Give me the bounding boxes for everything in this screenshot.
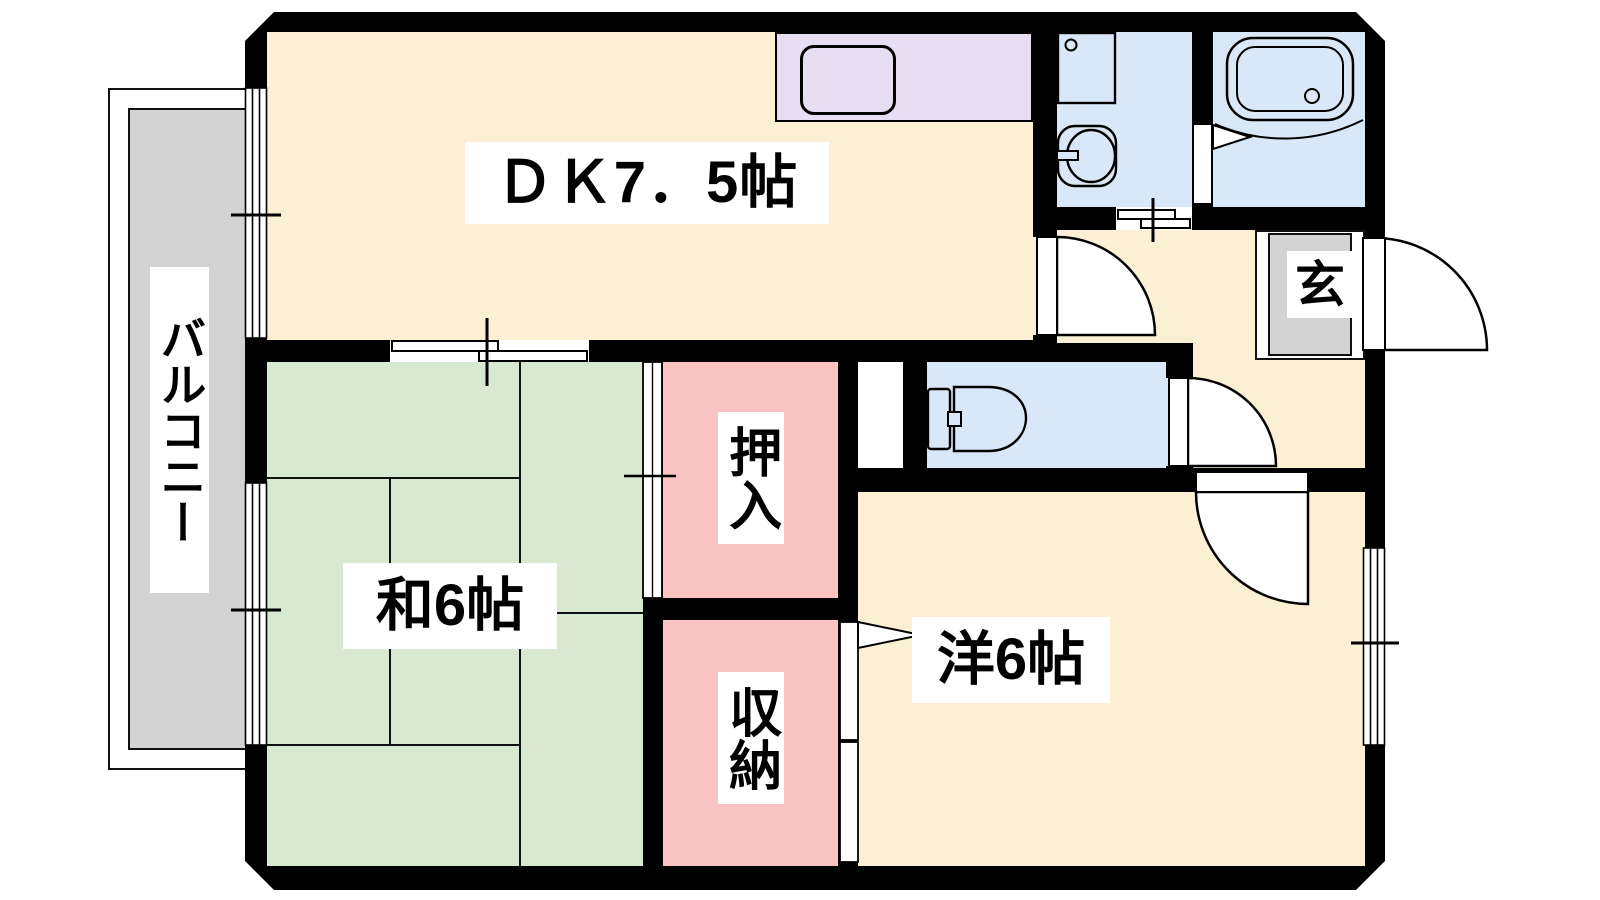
room-bathroom bbox=[1213, 32, 1365, 207]
label-entrance: 玄 bbox=[1287, 251, 1353, 318]
window-opening-dk bbox=[245, 88, 267, 338]
label-dining-kitchen: ＤＫ7．5帖 bbox=[465, 142, 829, 224]
hallway-side bbox=[1193, 343, 1365, 468]
front-door-opening bbox=[1363, 238, 1385, 350]
window-opening-japanese bbox=[245, 483, 267, 745]
label-balcony: バルコニー bbox=[150, 267, 209, 593]
toilet-door-opening bbox=[1166, 378, 1193, 466]
kitchen-sink-icon bbox=[800, 45, 896, 115]
label-closet-shuno: 収納 bbox=[718, 672, 784, 804]
floor-plan: ＤＫ7．5帖 和6帖 洋6帖 押入 収納 バルコニー 玄 bbox=[0, 0, 1600, 900]
bath-door-opening bbox=[1192, 123, 1213, 205]
room-washroom bbox=[1057, 32, 1192, 207]
label-western-room: 洋6帖 bbox=[912, 617, 1110, 703]
label-japanese-room: 和6帖 bbox=[343, 563, 557, 649]
kitchen-counter bbox=[775, 32, 1033, 122]
label-closet-oshiire: 押入 bbox=[718, 412, 784, 544]
room-toilet bbox=[927, 362, 1166, 468]
window-opening-western bbox=[1363, 548, 1385, 745]
sliding-door-opening-dk bbox=[390, 340, 589, 362]
sliding-door-opening-washroom bbox=[1116, 207, 1192, 230]
wall-gap bbox=[858, 362, 903, 468]
dk-door-opening bbox=[1033, 237, 1057, 335]
